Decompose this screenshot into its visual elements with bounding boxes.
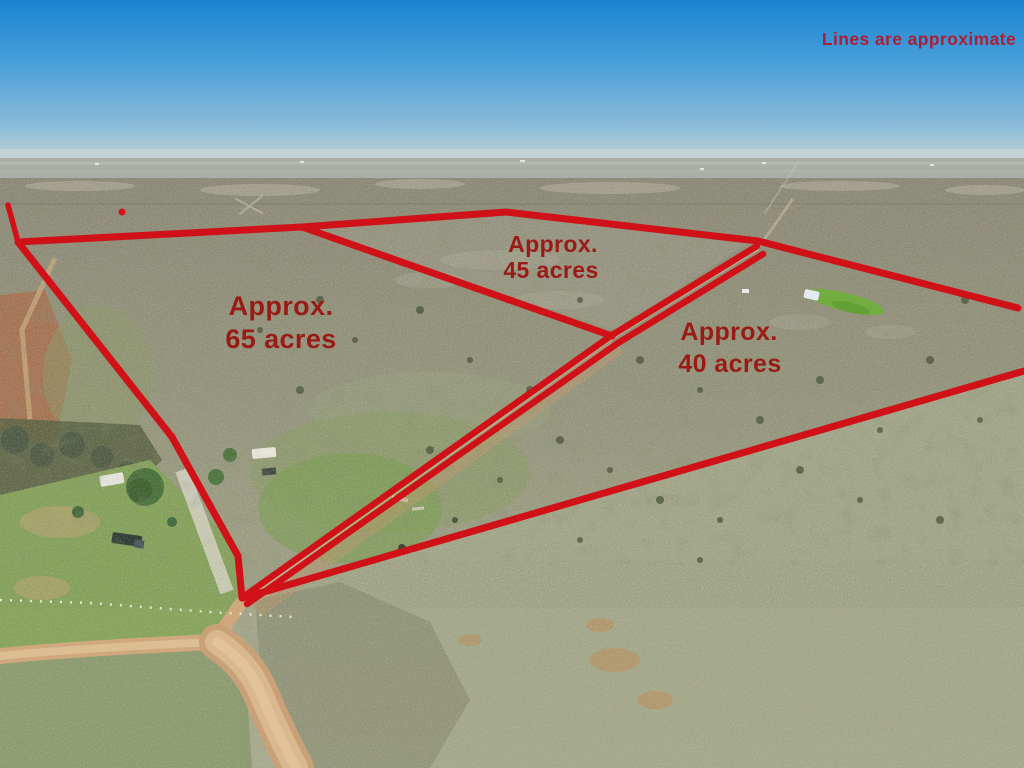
parcel-40-label: Approx. 40 acres [678, 318, 781, 378]
parcel-45-label-line1: Approx. [508, 231, 598, 257]
parcel-40-bottom-boundary [243, 371, 1024, 598]
parcel-45-label-line2: 45 acres [503, 257, 598, 283]
survey-marker-dot [119, 209, 126, 216]
parcel-65-left-boundary [18, 242, 242, 598]
disclaimer-text: Lines are approximate [822, 29, 1016, 49]
parcel-65-left-stub [8, 205, 18, 242]
parcel-40-top-boundary [758, 241, 1018, 308]
parcel-65-top-boundary [18, 227, 302, 242]
parcel-65-label-line1: Approx. [229, 291, 334, 321]
parcel-40-label-line1: Approx. [680, 318, 777, 346]
aerial-listing-photo: Approx. 65 acres Approx. 45 acres Approx… [0, 0, 1024, 768]
parcel-lines-overlay: Approx. 65 acres Approx. 45 acres Approx… [0, 0, 1024, 768]
parcel-45-label: Approx. 45 acres [503, 231, 598, 283]
parcel-40-label-line2: 40 acres [678, 350, 781, 378]
parcel-65-label: Approx. 65 acres [225, 291, 336, 354]
parcel-65-label-line2: 65 acres [225, 324, 336, 354]
